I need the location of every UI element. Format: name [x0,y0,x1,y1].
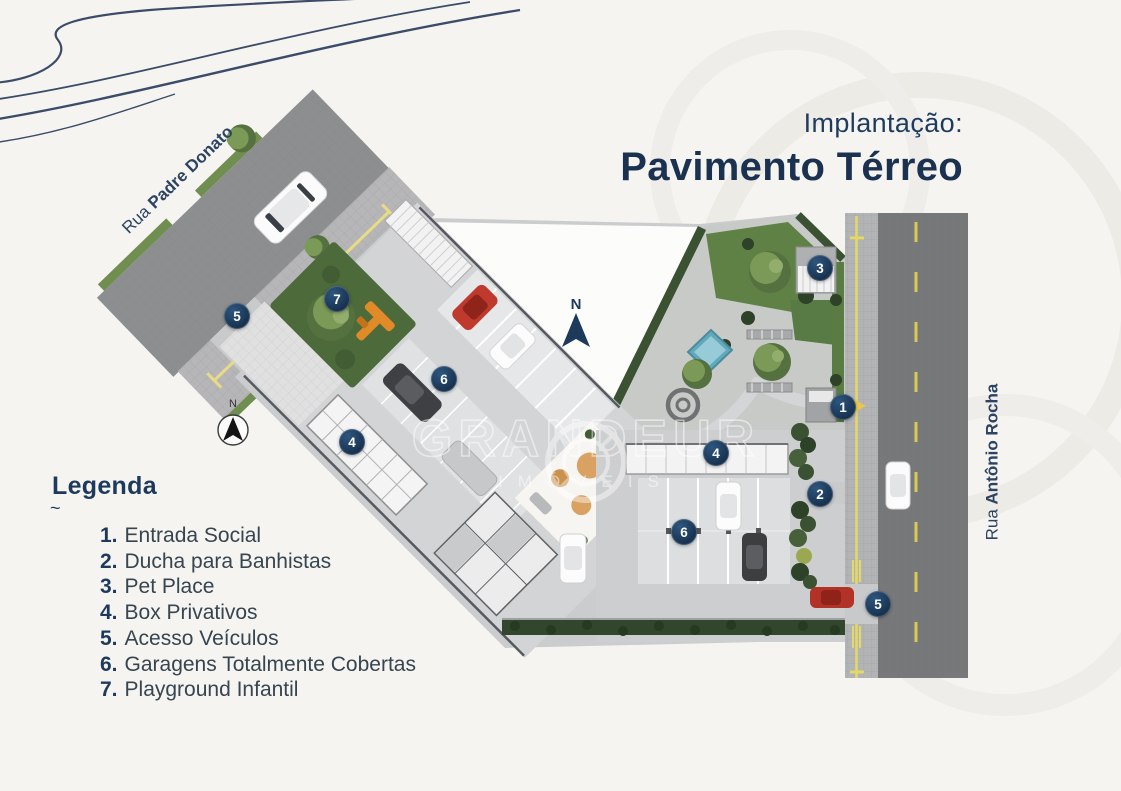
plan-marker: 3 [807,255,833,281]
legend-item: 3.Pet Place [100,574,416,600]
watermark-sub: IMÓVEIS [498,472,674,491]
car [886,462,910,509]
compass-label: N [229,398,237,410]
plan-marker: 4 [339,429,365,455]
legend: Legenda ~ 1.Entrada Social 2.Ducha para … [52,472,416,703]
car [560,534,586,583]
legend-tilde: ~ [50,498,416,519]
car [716,482,741,530]
lawn [790,300,836,345]
tree [682,359,712,389]
page: GRANDEUR IMÓVEIS N N Implantação: Pavime… [0,0,1121,791]
car [742,533,767,581]
legend-item: 1.Entrada Social [100,523,416,549]
plan-marker: 1 [830,394,856,420]
plan-marker: 6 [671,519,697,545]
plan-marker: 5 [865,591,891,617]
car [810,587,854,608]
legend-heading: Legenda [52,472,416,501]
plan-marker: 7 [324,286,350,312]
wave-lines-decor [0,0,520,143]
garage-stalls [638,478,790,584]
plan-marker: 2 [807,481,833,507]
plan-marker: 5 [224,303,250,329]
plan-marker: 4 [703,440,729,466]
street-label-antonio-rocha: Rua Antônio Rocha [983,375,1003,550]
page-title: Pavimento Térreo [620,145,963,190]
tree [753,343,791,381]
north-arrow-label: N [571,296,582,313]
legend-item: 5.Acesso Veículos [100,626,416,652]
legend-item: 2.Ducha para Banhistas [100,549,416,575]
legend-item: 6.Garagens Totalmente Cobertas [100,652,416,678]
legend-items: 1.Entrada Social 2.Ducha para Banhistas … [100,523,416,703]
hedge [502,619,845,636]
title-block: Implantação: Pavimento Térreo [620,108,963,190]
legend-item: 7.Playground Infantil [100,677,416,703]
legend-item: 4.Box Privativos [100,600,416,626]
tree [749,251,791,293]
plan-marker: 6 [431,366,457,392]
title-kicker: Implantação: [620,108,963,139]
